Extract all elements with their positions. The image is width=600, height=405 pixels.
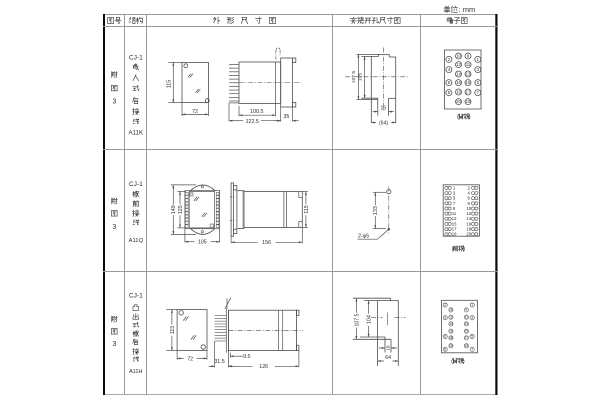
svg-text:20: 20 <box>456 99 461 104</box>
svg-text:): ) <box>463 359 465 365</box>
svg-text:14: 14 <box>456 72 461 77</box>
svg-text:A11Q: A11Q <box>129 238 144 244</box>
svg-text:5: 5 <box>471 335 473 339</box>
svg-text:35: 35 <box>283 114 289 120</box>
svg-text:15: 15 <box>466 80 471 85</box>
svg-text:(64): (64) <box>379 121 388 127</box>
svg-text:11: 11 <box>465 315 469 319</box>
svg-text:16: 16 <box>456 80 461 85</box>
svg-text:13: 13 <box>466 72 471 77</box>
svg-text:19: 19 <box>452 232 457 237</box>
svg-text::: : <box>458 7 460 14</box>
svg-text:15: 15 <box>465 329 469 333</box>
svg-text:20: 20 <box>449 344 453 348</box>
svg-text:20: 20 <box>466 232 471 237</box>
svg-text:): ) <box>463 247 465 253</box>
svg-text:10: 10 <box>456 54 461 59</box>
svg-text:9: 9 <box>465 308 467 312</box>
svg-text:31.5: 31.5 <box>214 359 224 365</box>
svg-text:72: 72 <box>187 356 193 362</box>
svg-text:115: 115 <box>170 326 176 335</box>
svg-text:CJ-1: CJ-1 <box>129 181 143 188</box>
svg-text:mm: mm <box>463 5 475 14</box>
svg-text:13: 13 <box>465 322 469 326</box>
svg-text:107.5: 107.5 <box>351 71 357 84</box>
svg-text:8: 8 <box>444 347 446 351</box>
svg-text:16: 16 <box>386 345 391 351</box>
svg-text:156: 156 <box>262 240 271 246</box>
svg-text:11: 11 <box>466 62 471 67</box>
svg-text:): ) <box>469 115 471 121</box>
svg-text:105: 105 <box>198 240 207 246</box>
svg-text:64: 64 <box>385 355 391 361</box>
svg-text:A11K: A11K <box>128 130 144 137</box>
svg-text:125: 125 <box>178 205 184 214</box>
svg-text:100.5: 100.5 <box>250 109 263 115</box>
svg-text:1: 1 <box>471 303 473 307</box>
svg-text:104: 104 <box>367 315 373 324</box>
svg-text:3: 3 <box>112 98 116 105</box>
svg-text:17: 17 <box>466 90 471 95</box>
svg-text:19: 19 <box>466 99 471 104</box>
svg-text:16: 16 <box>381 106 387 112</box>
svg-text:2-φ5: 2-φ5 <box>358 233 369 239</box>
svg-text:2: 2 <box>444 303 446 307</box>
svg-text:12: 12 <box>456 62 461 67</box>
svg-text:7: 7 <box>471 347 473 351</box>
svg-text:18: 18 <box>456 90 461 95</box>
svg-text:14: 14 <box>449 322 453 326</box>
svg-text:122.5: 122.5 <box>246 119 259 125</box>
svg-text:4: 4 <box>444 316 446 320</box>
svg-text:126: 126 <box>259 364 268 370</box>
svg-text:CJ-1: CJ-1 <box>129 54 143 61</box>
svg-text:133: 133 <box>373 206 379 215</box>
svg-text:3: 3 <box>471 316 473 320</box>
svg-text:CJ-1: CJ-1 <box>129 292 143 299</box>
svg-text:17: 17 <box>465 336 469 340</box>
svg-text:107.5: 107.5 <box>354 313 360 326</box>
svg-text:10: 10 <box>449 308 453 312</box>
svg-text:9.5: 9.5 <box>243 354 250 360</box>
svg-text:115: 115 <box>167 80 173 89</box>
svg-text:6: 6 <box>444 335 446 339</box>
svg-text:12: 12 <box>449 315 453 319</box>
svg-text:16: 16 <box>449 329 453 333</box>
svg-text:3: 3 <box>112 224 116 231</box>
svg-text:149: 149 <box>171 205 177 214</box>
svg-text:105: 105 <box>358 73 364 81</box>
svg-text:A11H: A11H <box>129 369 142 375</box>
svg-text:18: 18 <box>449 336 453 340</box>
svg-text:3: 3 <box>112 341 116 348</box>
svg-text:72: 72 <box>192 109 198 115</box>
svg-text:115: 115 <box>304 205 310 214</box>
svg-text:19: 19 <box>465 344 469 348</box>
